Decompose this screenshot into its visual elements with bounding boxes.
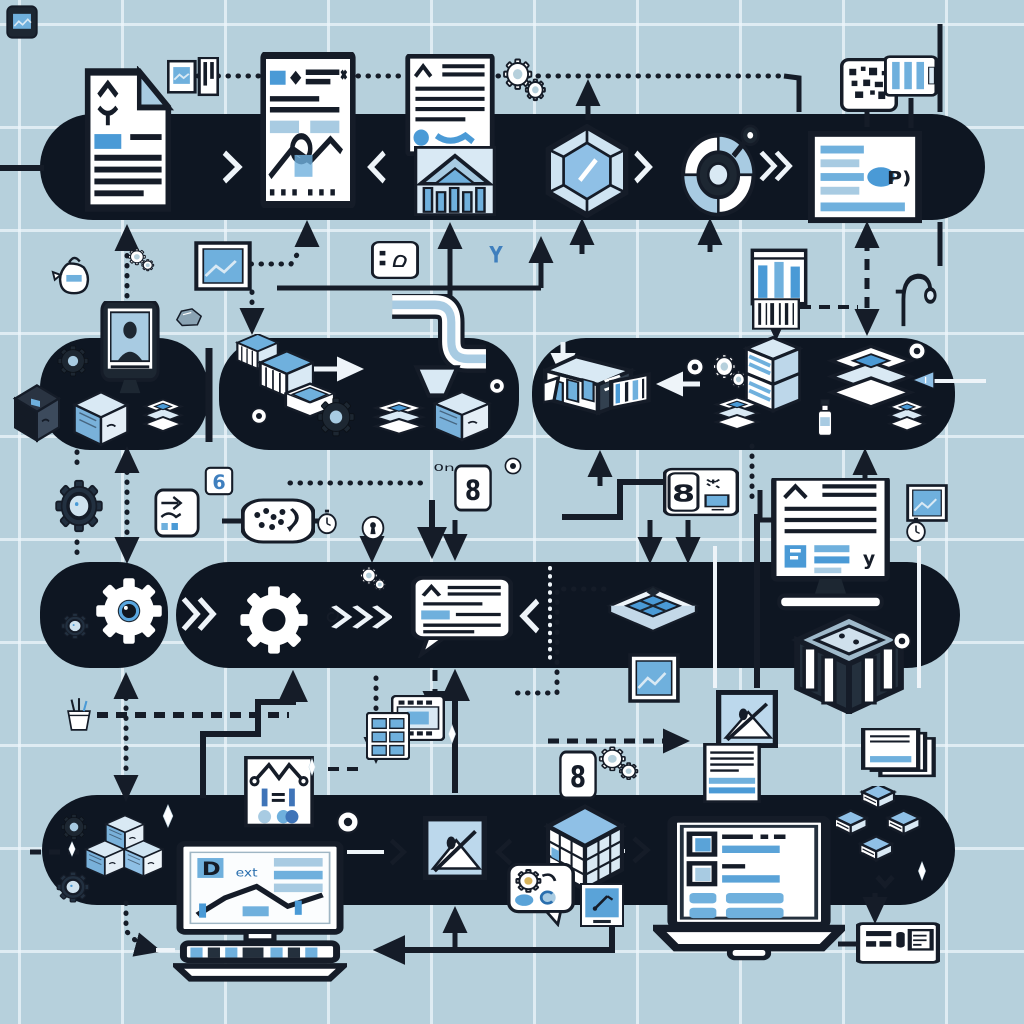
person-card-3: 8 bbox=[558, 750, 598, 800]
gears-top bbox=[500, 54, 552, 110]
connector bbox=[784, 76, 799, 112]
browser-panel: P) bbox=[808, 128, 922, 226]
badge-6: 6 bbox=[204, 466, 234, 496]
bubble-gear bbox=[506, 863, 576, 927]
grid-card bbox=[366, 712, 410, 760]
svg-text:ext: ext bbox=[236, 866, 258, 879]
diamond-2 bbox=[913, 861, 931, 881]
svg-text:8: 8 bbox=[672, 480, 695, 507]
hexagon-gem bbox=[542, 124, 632, 218]
eye-tag bbox=[910, 370, 936, 390]
photo-clock bbox=[580, 883, 624, 927]
laptop-list bbox=[653, 816, 845, 964]
svg-text:P): P) bbox=[887, 167, 911, 188]
gear-dark-edge bbox=[54, 342, 92, 380]
chip-platform bbox=[606, 586, 700, 652]
cube-main bbox=[71, 390, 131, 447]
console-card bbox=[856, 920, 940, 966]
roof-chart bbox=[414, 146, 496, 216]
connector bbox=[562, 482, 663, 517]
chevron-left-1 bbox=[364, 150, 392, 184]
circle-o-2 bbox=[487, 376, 507, 396]
circle-o-4 bbox=[906, 340, 928, 362]
gears-mini-4 bbox=[596, 743, 644, 787]
person-card-1: 8 bbox=[453, 464, 493, 512]
gears-mini-1 bbox=[126, 246, 158, 276]
diamond-4 bbox=[304, 758, 320, 776]
steps-pill bbox=[241, 496, 315, 546]
chevron-triple bbox=[330, 602, 392, 632]
circle-ring bbox=[334, 808, 362, 836]
monitor-document: y bbox=[763, 478, 898, 618]
document-chart bbox=[252, 52, 364, 208]
gear-solid bbox=[234, 580, 314, 660]
connector bbox=[126, 903, 156, 950]
crate-columns bbox=[790, 614, 908, 714]
svg-text:0n: 0n bbox=[433, 462, 454, 473]
clock-1 bbox=[314, 508, 340, 536]
battery-bars bbox=[884, 54, 942, 98]
chevron-double-1 bbox=[756, 148, 794, 184]
pencil-cup bbox=[62, 696, 96, 732]
chevron-right-2 bbox=[628, 150, 656, 184]
kettle bbox=[50, 250, 98, 298]
circle-o-5 bbox=[503, 456, 523, 476]
pipe-elbow bbox=[386, 294, 488, 402]
speech-doc bbox=[411, 576, 513, 658]
monitor-dashboard: Dext bbox=[173, 841, 347, 983]
circle-o-3 bbox=[684, 356, 706, 378]
connector bbox=[251, 250, 300, 264]
svg-text:8: 8 bbox=[465, 475, 481, 508]
svg-text:y: y bbox=[863, 546, 876, 569]
circle-o-1 bbox=[249, 406, 269, 426]
gear-ring-big bbox=[50, 474, 108, 538]
corner-photo-chip bbox=[6, 5, 38, 39]
hook-curve bbox=[890, 266, 938, 330]
gear-outline-small bbox=[58, 610, 92, 642]
diamond-1 bbox=[156, 804, 180, 828]
team-card: 8 bbox=[663, 466, 739, 518]
cube-dark-edge bbox=[12, 383, 62, 443]
colon-card bbox=[371, 241, 419, 279]
server-stack bbox=[738, 336, 808, 414]
gears-mini-3 bbox=[358, 564, 390, 596]
chevron-left-2 bbox=[516, 598, 546, 634]
truck-scanner bbox=[543, 346, 653, 434]
image-chart-2 bbox=[716, 690, 778, 748]
bottle bbox=[810, 398, 840, 438]
clock-2 bbox=[903, 516, 929, 544]
gear-texture bbox=[313, 393, 359, 441]
document-text bbox=[402, 54, 498, 156]
svg-text:Y: Y bbox=[488, 243, 502, 267]
stone bbox=[170, 296, 208, 332]
target-dial bbox=[678, 124, 762, 218]
cube-cluster bbox=[83, 814, 167, 888]
diamond-3 bbox=[64, 841, 80, 857]
connector bbox=[380, 923, 612, 950]
photo-pair-card bbox=[167, 57, 219, 99]
svg-text:6: 6 bbox=[212, 471, 225, 494]
diagram-canvas: P)Y 680n8y8 Dext bbox=[0, 0, 1024, 1024]
shuffle-card bbox=[154, 488, 200, 538]
circle-o-6 bbox=[891, 630, 913, 652]
window-p-card bbox=[628, 653, 680, 703]
gear-camera bbox=[90, 572, 168, 650]
diamond-5 bbox=[443, 724, 461, 744]
chevron-double-2 bbox=[178, 594, 218, 634]
doc-list bbox=[698, 743, 766, 803]
chevron-right-1 bbox=[216, 150, 246, 184]
tablet-user bbox=[93, 301, 167, 395]
books-stack-1 bbox=[141, 395, 185, 439]
chevron-right-d2 bbox=[626, 836, 654, 864]
image-chart-1 bbox=[423, 816, 487, 880]
barcode-card bbox=[752, 298, 800, 330]
y-mark: Y bbox=[486, 243, 506, 267]
layer-stack-1 bbox=[371, 396, 427, 442]
chevron-right-d1 bbox=[384, 838, 410, 866]
keyhole-circle bbox=[360, 514, 386, 542]
label-on: 0n bbox=[432, 460, 456, 474]
docs-stack bbox=[858, 728, 944, 780]
svg-text:D: D bbox=[202, 858, 221, 879]
svg-text:8: 8 bbox=[570, 762, 586, 795]
photo-frame-1 bbox=[194, 241, 252, 291]
chevron-left-d1 bbox=[492, 838, 518, 866]
box-flat bbox=[431, 390, 493, 442]
books-stack-2 bbox=[886, 396, 928, 438]
